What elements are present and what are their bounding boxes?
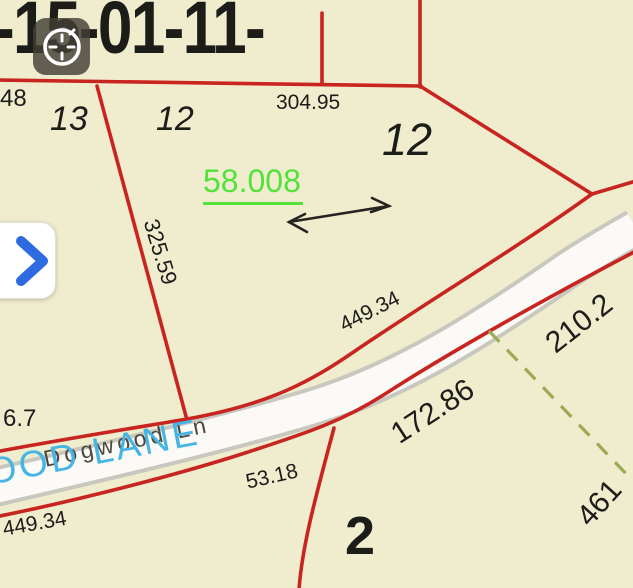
clock-button[interactable] [33, 18, 90, 75]
lot-number-12-small: 12 [156, 100, 194, 139]
expand-panel-button[interactable] [0, 222, 56, 299]
map-canvas[interactable]: -15-01-11- 48 13 12 304.95 12 58.008 325… [0, 0, 633, 588]
map-linework [0, 0, 633, 588]
dimension-48: 48 [0, 85, 27, 113]
selected-parcel-area-value: 58.008 [203, 163, 303, 205]
lot-number-12-large: 12 [382, 114, 432, 166]
dimension-arrow-icon [289, 198, 389, 232]
dimension-304-95: 304.95 [276, 91, 340, 115]
dimension-6-7: 6.7 [3, 405, 36, 433]
clock-icon [39, 24, 85, 70]
lot-number-2: 2 [345, 505, 375, 567]
lot-number-13: 13 [50, 100, 88, 139]
